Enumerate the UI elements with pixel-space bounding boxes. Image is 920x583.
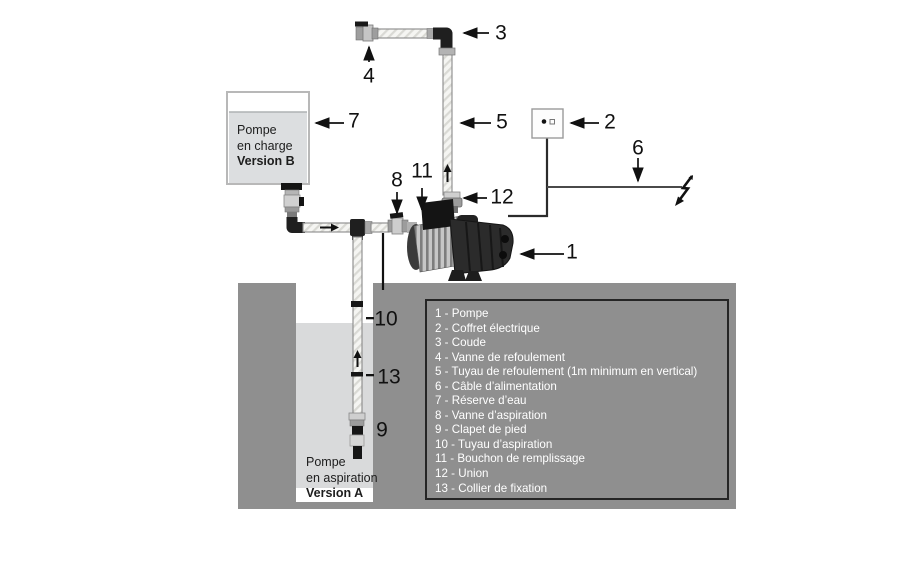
pump-installation-diagram: 1 2 3 4 5 6 7 8 9 10 11 12 13 Pompe en c… bbox=[0, 0, 920, 583]
legend-item: 2 - Coffret électrique bbox=[435, 322, 723, 337]
elbow-fitting bbox=[433, 34, 447, 50]
pipe-collar bbox=[351, 301, 363, 307]
legend-item: 8 - Vanne d’aspiration bbox=[435, 409, 723, 424]
legend-item: 10 - Tuyau d’aspiration bbox=[435, 438, 723, 453]
legend-item: 3 - Coude bbox=[435, 336, 723, 351]
callout-8: 8 bbox=[391, 170, 403, 191]
callout-6: 6 bbox=[632, 138, 644, 159]
discharge-pipe bbox=[355, 22, 455, 196]
cable-to-pump bbox=[508, 138, 547, 216]
callout-4: 4 bbox=[363, 66, 375, 87]
tick-10 bbox=[366, 317, 374, 319]
version-a-line3: Version A bbox=[306, 486, 378, 502]
callout-2: 2 bbox=[604, 112, 616, 133]
callout-1: 1 bbox=[566, 242, 578, 263]
pump-terminal-box bbox=[421, 199, 455, 230]
tee-fitting bbox=[350, 219, 365, 236]
legend-box: 1 - Pompe 2 - Coffret électrique 3 - Cou… bbox=[425, 299, 729, 500]
legend-item: 6 - Câble d’alimentation bbox=[435, 380, 723, 395]
electrical-circuit bbox=[508, 109, 693, 216]
tank-b-label: Pompe en charge Version B bbox=[237, 123, 295, 170]
legend-item: 9 - Clapet de pied bbox=[435, 423, 723, 438]
tick-13 bbox=[366, 374, 374, 376]
callout-3: 3 bbox=[495, 23, 507, 44]
tank-b-line3: Version B bbox=[237, 154, 295, 170]
callout-7: 7 bbox=[348, 111, 360, 132]
pump-foot bbox=[448, 270, 466, 281]
tank-b-line1: Pompe bbox=[237, 123, 295, 139]
legend-item: 5 - Tuyau de refoulement (1m minimum en … bbox=[435, 365, 723, 380]
legend-item: 11 - Bouchon de remplissage bbox=[435, 452, 723, 467]
callout-9: 9 bbox=[376, 420, 388, 441]
callout-12: 12 bbox=[490, 187, 513, 208]
pump bbox=[407, 199, 513, 281]
version-a-label: Pompe en aspiration Version A bbox=[306, 455, 378, 502]
legend-item: 12 - Union bbox=[435, 467, 723, 482]
legend-item: 4 - Vanne de refoulement bbox=[435, 351, 723, 366]
version-a-line2: en aspiration bbox=[306, 471, 378, 487]
callout-5: 5 bbox=[496, 112, 508, 133]
suction-pipe-horizontal bbox=[303, 219, 389, 240]
legend-item: 7 - Réserve d’eau bbox=[435, 394, 723, 409]
tank-outlet-valve bbox=[281, 183, 305, 228]
discharge-valve bbox=[355, 22, 378, 42]
legend-item: 13 - Collier de fixation bbox=[435, 482, 723, 497]
callout-11: 11 bbox=[411, 161, 433, 182]
lightning-bolt-icon bbox=[675, 175, 693, 206]
electrical-box bbox=[532, 109, 563, 138]
callout-13: 13 bbox=[377, 367, 400, 388]
fixing-collar bbox=[351, 372, 363, 377]
version-a-line1: Pompe bbox=[306, 455, 378, 471]
legend-item: 1 - Pompe bbox=[435, 307, 723, 322]
tank-b-line2: en charge bbox=[237, 139, 295, 155]
callout-10: 10 bbox=[374, 309, 397, 330]
